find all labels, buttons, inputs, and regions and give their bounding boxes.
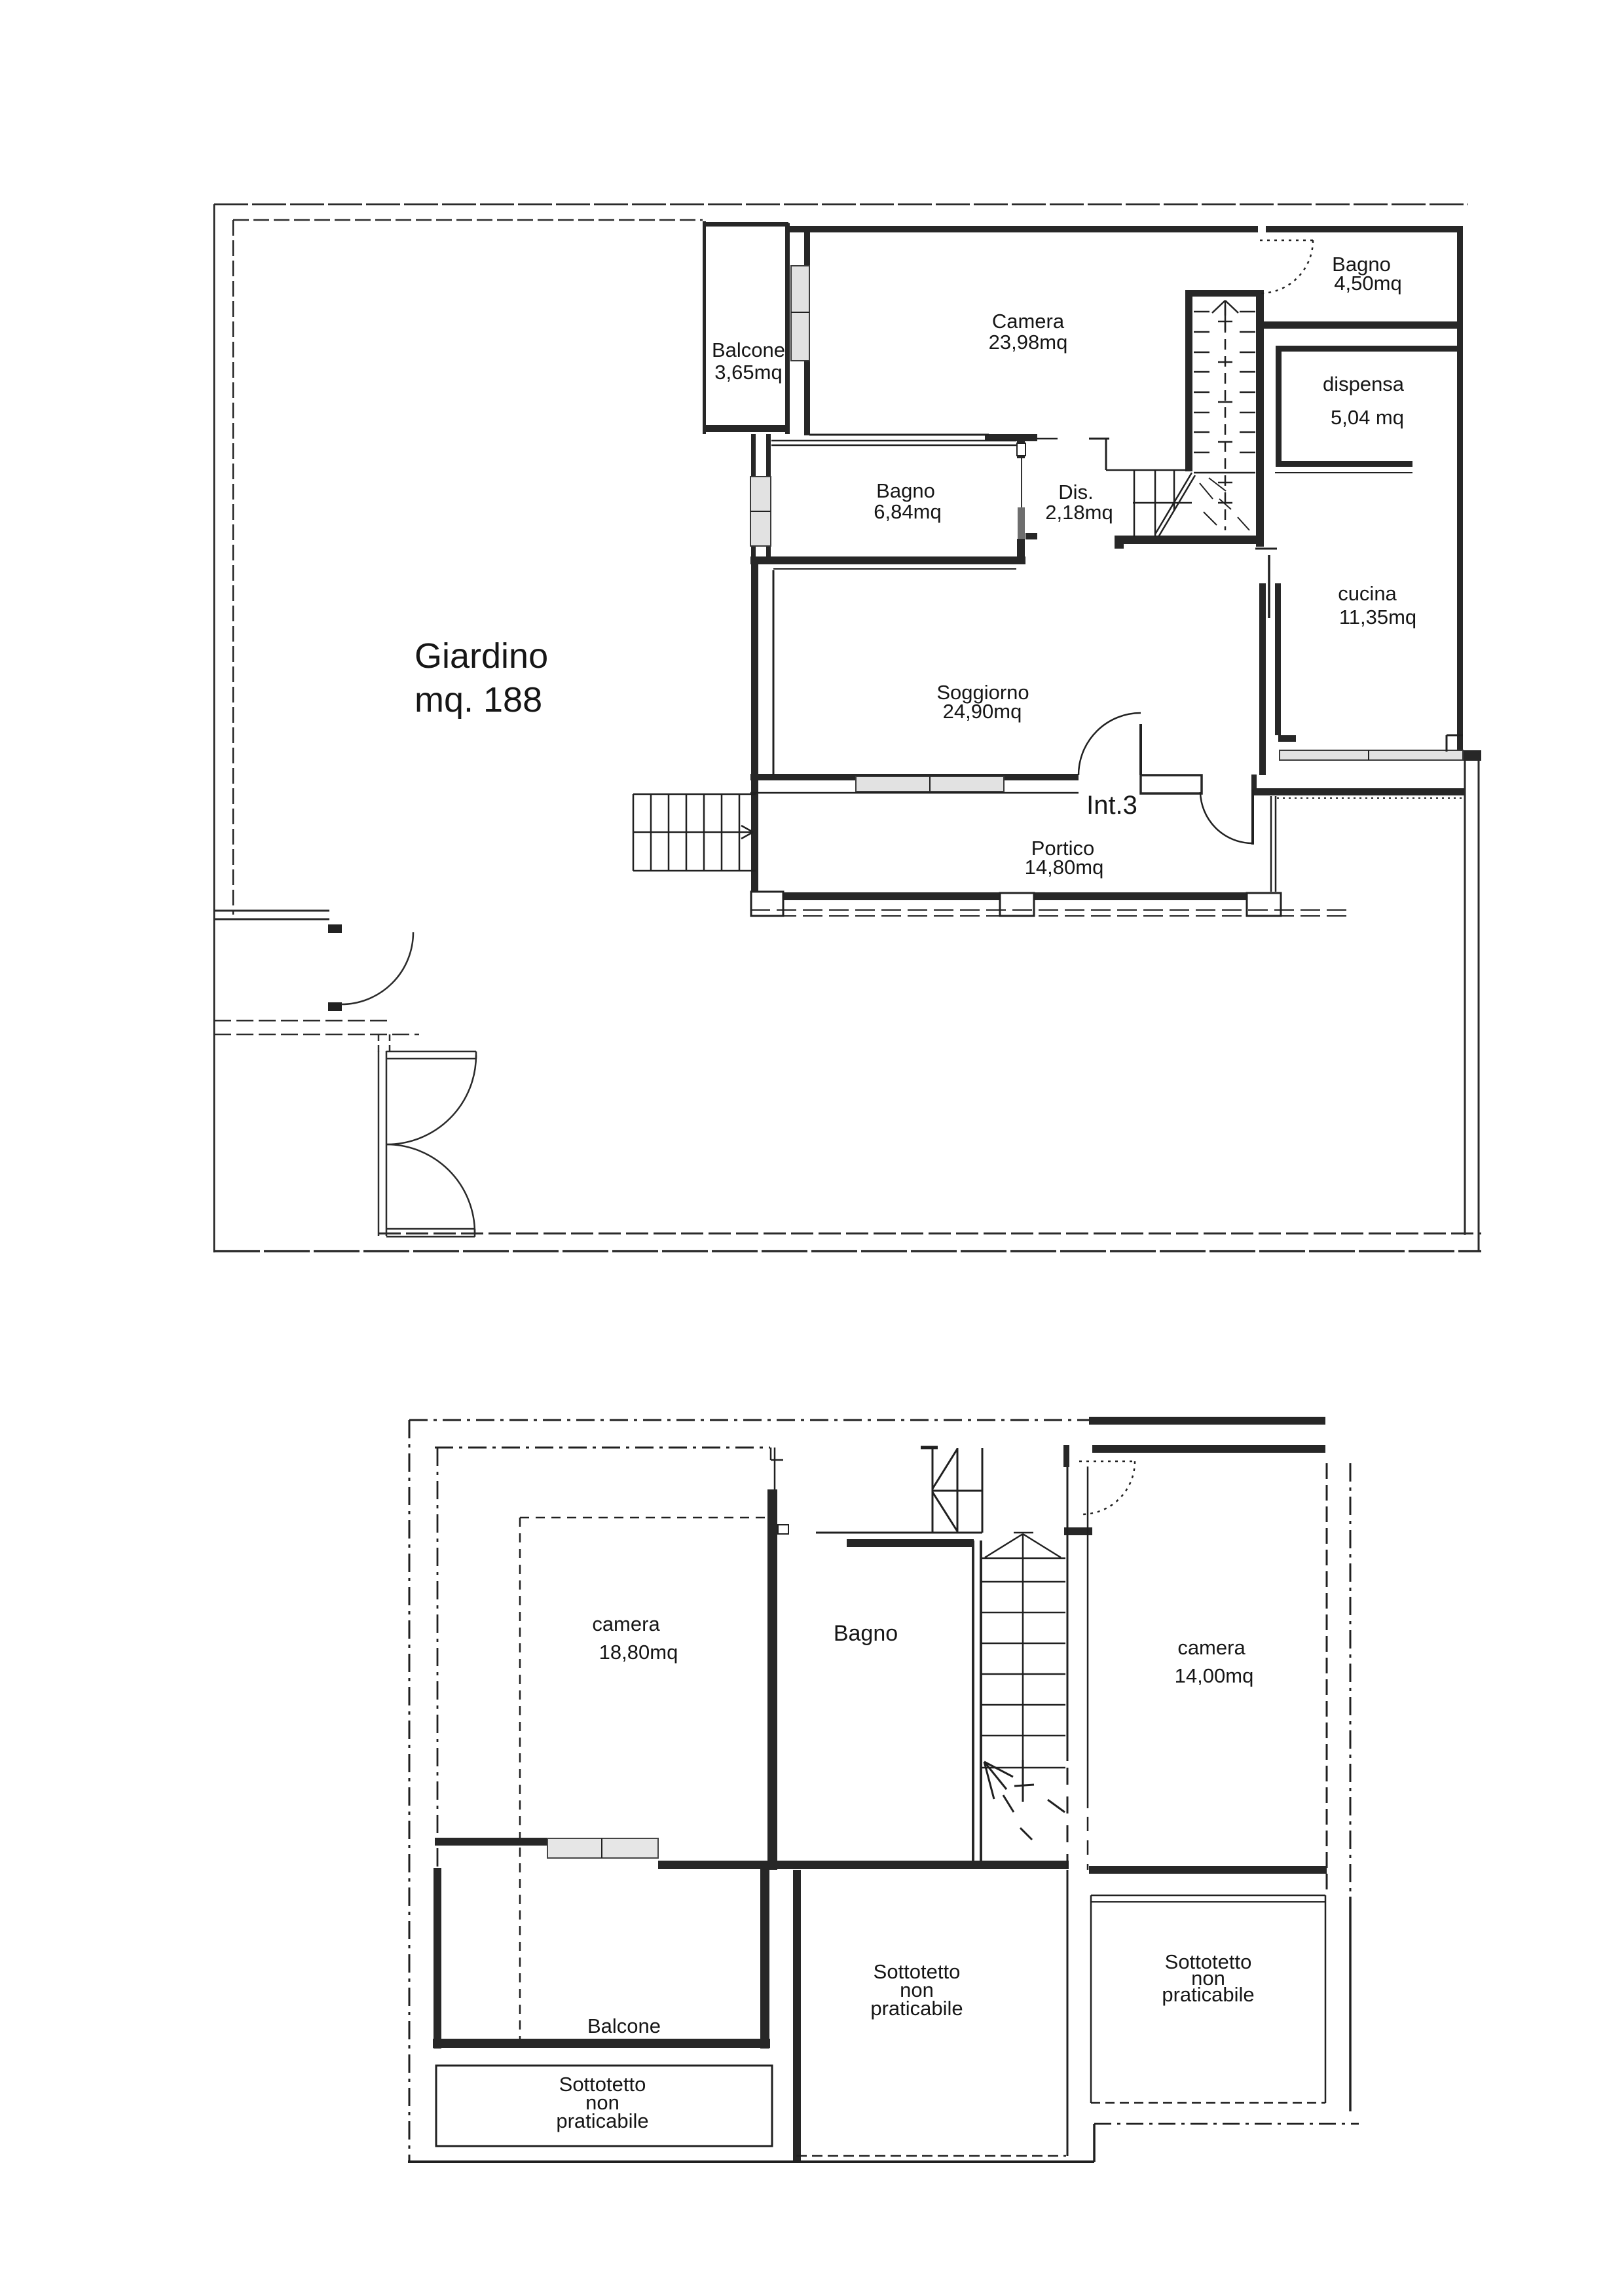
svg-text:14,00mq: 14,00mq [1175, 1664, 1254, 1687]
svg-text:Bagno: Bagno [876, 479, 935, 502]
svg-text:23,98mq: 23,98mq [989, 331, 1068, 354]
svg-text:dispensa: dispensa [1323, 373, 1405, 395]
svg-text:Dis.: Dis. [1058, 481, 1093, 503]
svg-text:3,65mq: 3,65mq [714, 361, 782, 384]
svg-text:2,18mq: 2,18mq [1045, 501, 1113, 524]
svg-text:camera: camera [1177, 1636, 1246, 1659]
svg-text:Giardino: Giardino [415, 636, 548, 676]
svg-text:4,50mq: 4,50mq [1334, 272, 1401, 295]
svg-text:praticabile: praticabile [870, 1997, 963, 2020]
svg-text:camera: camera [592, 1613, 660, 1635]
svg-text:Int.3: Int.3 [1086, 791, 1137, 820]
svg-text:mq. 188: mq. 188 [415, 680, 542, 720]
svg-text:Balcone: Balcone [712, 338, 785, 361]
svg-text:24,90mq: 24,90mq [943, 700, 1022, 723]
svg-text:Bagno: Bagno [834, 1621, 898, 1646]
svg-text:14,80mq: 14,80mq [1025, 856, 1104, 879]
svg-text:cucina: cucina [1338, 582, 1397, 605]
svg-text:11,35mq: 11,35mq [1339, 606, 1416, 629]
svg-text:5,04 mq: 5,04 mq [1331, 406, 1404, 429]
svg-text:18,80mq: 18,80mq [599, 1641, 678, 1664]
svg-text:praticabile: praticabile [1162, 1983, 1254, 2006]
svg-text:Balcone: Balcone [587, 2014, 661, 2037]
svg-text:6,84mq: 6,84mq [874, 500, 941, 523]
svg-text:Camera: Camera [992, 310, 1065, 333]
svg-text:praticabile: praticabile [556, 2109, 648, 2132]
